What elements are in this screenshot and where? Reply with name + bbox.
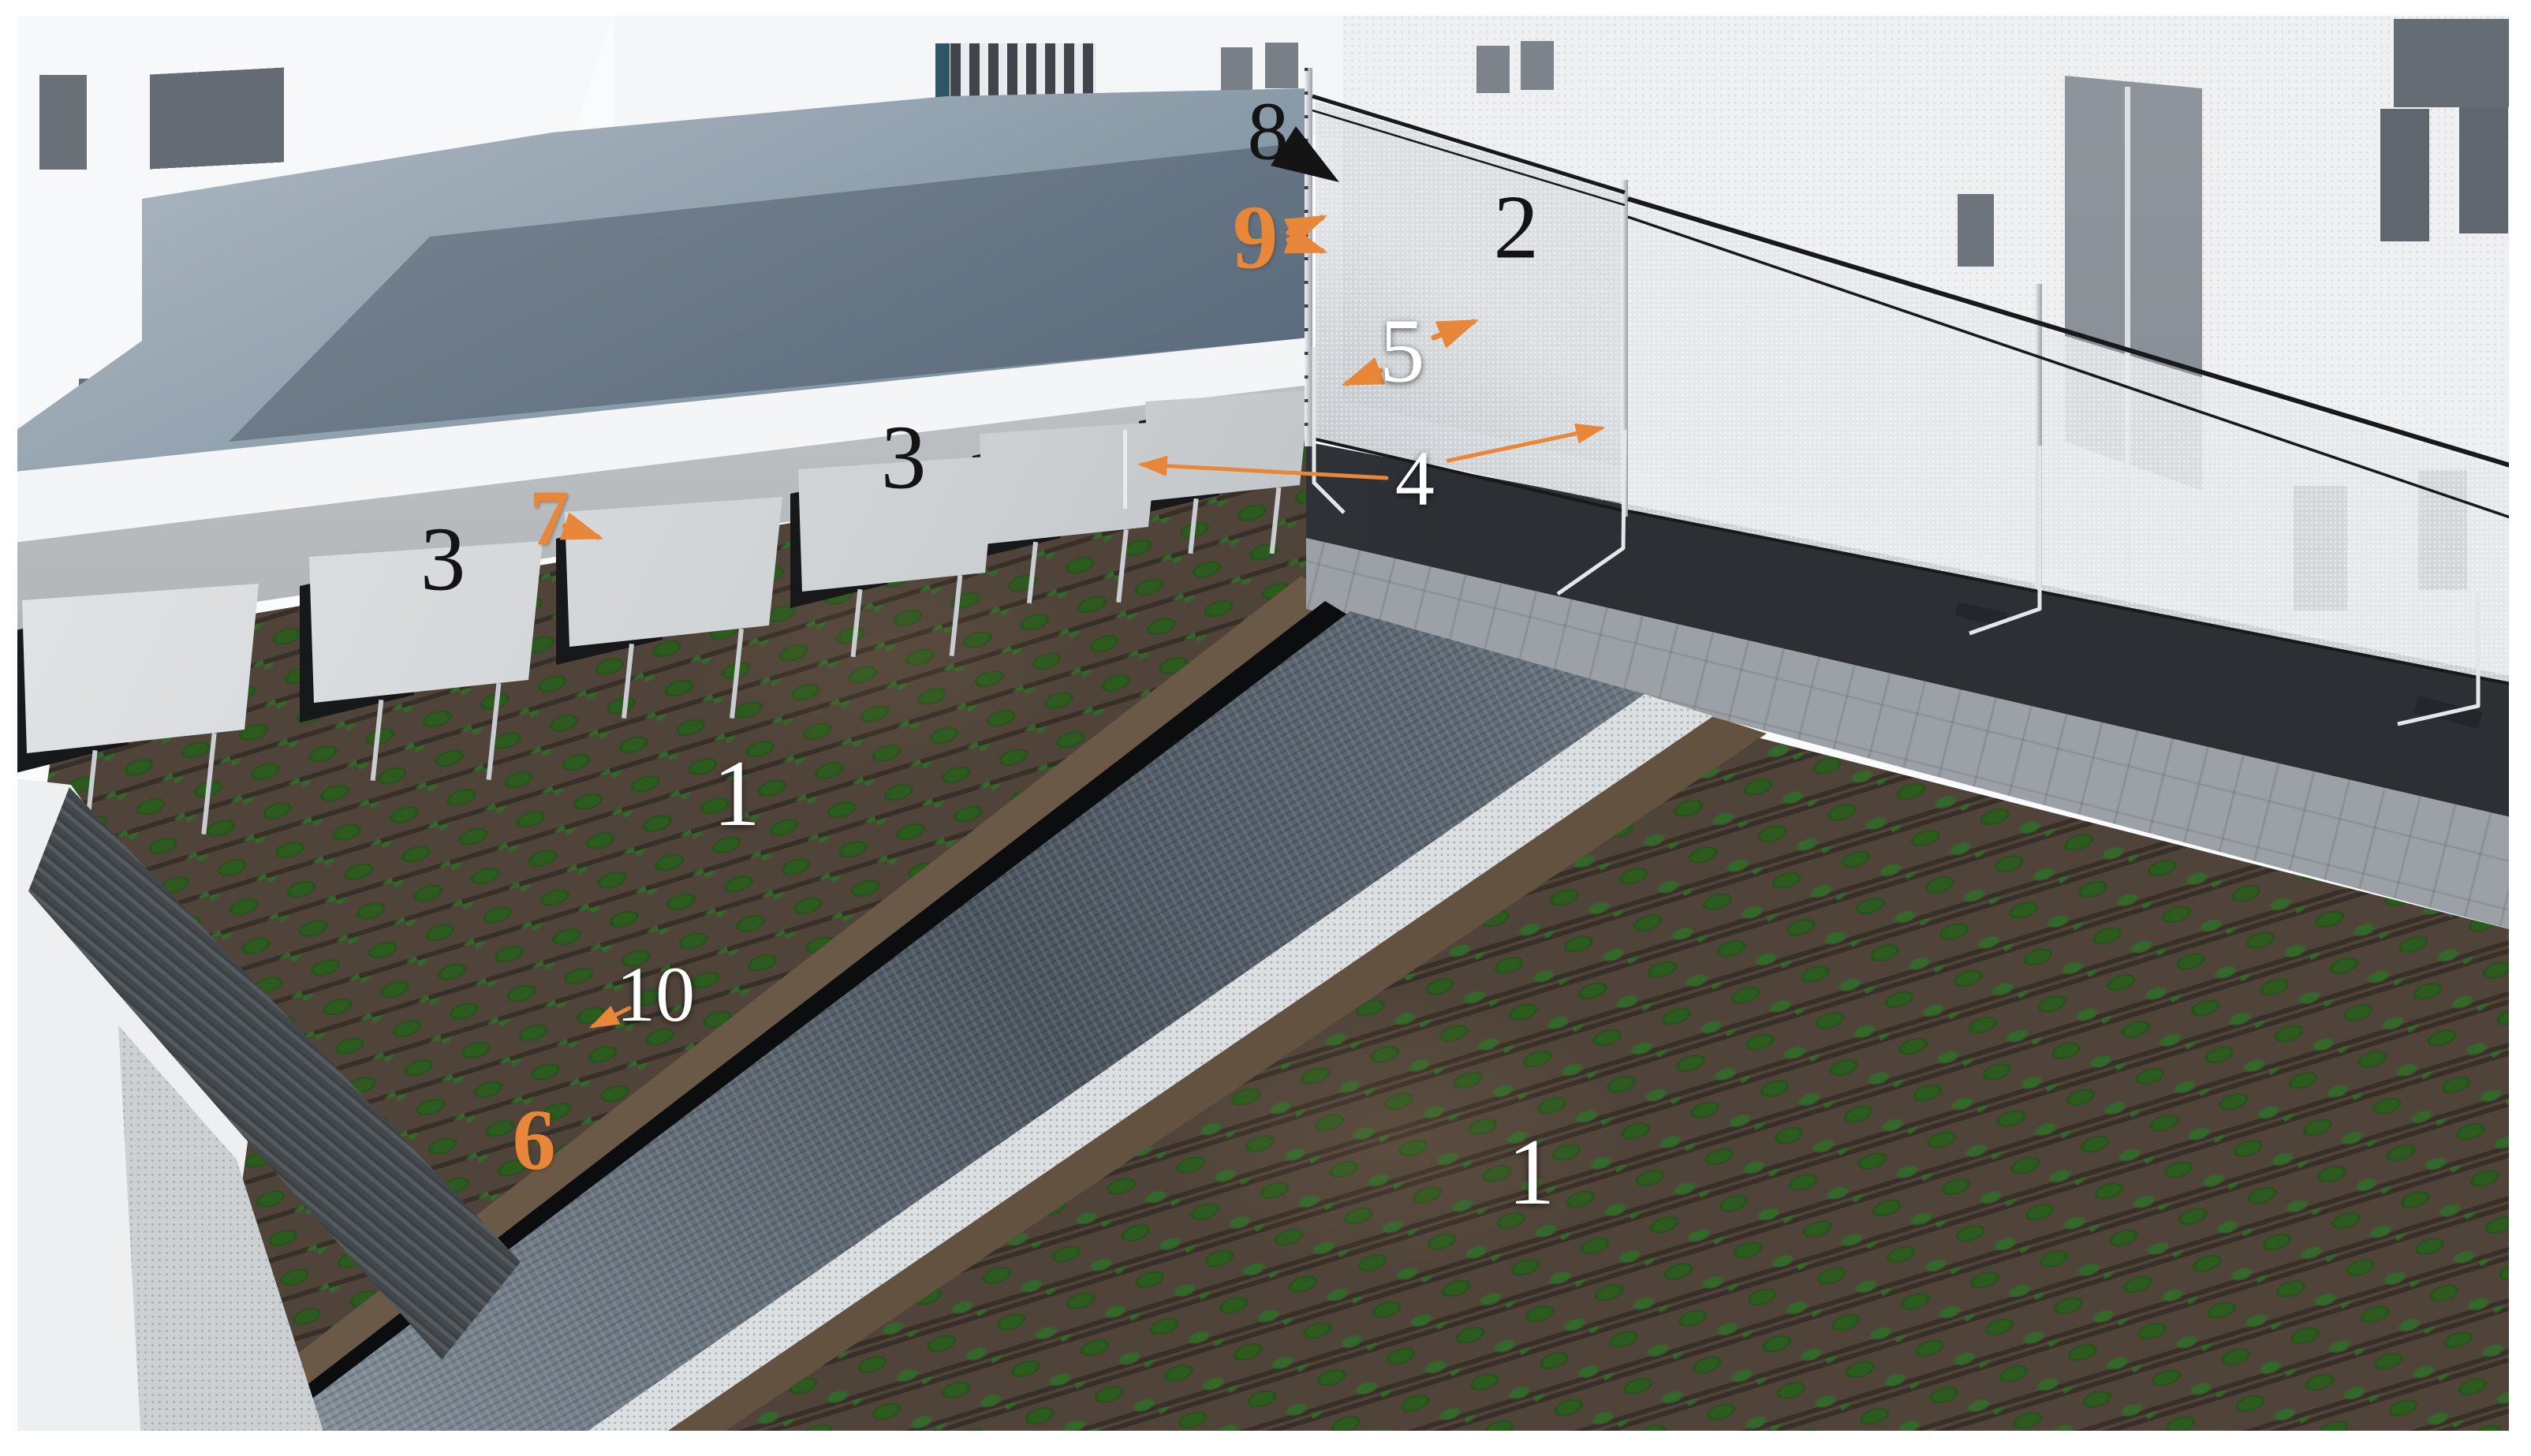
callout-1-left-bed: 1 — [713, 746, 760, 841]
arrow-4-right — [1448, 428, 1601, 461]
callout-7-cover-box: 7 — [529, 479, 569, 558]
callout-5-parapet: 5 — [1379, 305, 1425, 396]
orange-arrows — [565, 218, 1601, 1026]
frame-bottom — [0, 1431, 2531, 1456]
callout-4-pipes: 4 — [1395, 439, 1435, 518]
arrow-5-left — [1347, 371, 1380, 383]
callout-2-fence-mesh: 2 — [1493, 181, 1539, 272]
callout-1-right-bed: 1 — [1507, 1125, 1555, 1219]
callout-10-edging: 10 — [616, 955, 695, 1034]
frame-top — [0, 0, 2531, 16]
frame-left — [0, 0, 17, 1456]
callout-6-walkway: 6 — [513, 1096, 556, 1183]
arrow-4-left — [1142, 465, 1387, 478]
arrow-9-upper — [1289, 218, 1322, 233]
callout-3-cover-b: 3 — [881, 412, 927, 502]
callout-9-fence: 9 — [1233, 192, 1279, 282]
callout-8-post: 8 — [1247, 90, 1289, 173]
arrow-5-right — [1434, 322, 1473, 338]
arrow-9-lower — [1289, 240, 1322, 251]
callout-3-cover-a: 3 — [420, 513, 466, 604]
rooftop-farm-figure: 1 1 2 3 3 4 5 6 7 8 9 10 — [0, 0, 2531, 1456]
arrow-7 — [565, 526, 598, 537]
frame-right — [2509, 0, 2531, 1456]
